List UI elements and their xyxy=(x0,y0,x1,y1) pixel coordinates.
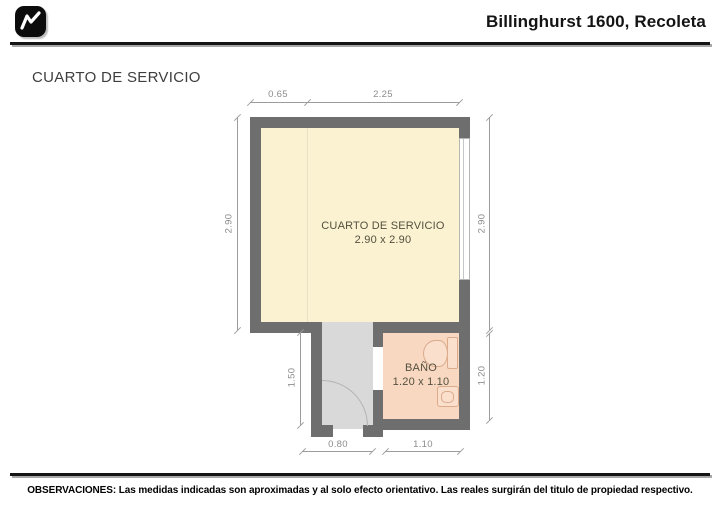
dim-line-top xyxy=(250,102,459,103)
window xyxy=(459,138,470,280)
dim-tick xyxy=(486,417,493,424)
wall-top xyxy=(250,117,470,128)
main-room-size: 2.90 x 2.90 xyxy=(307,233,459,247)
dim-line-hall xyxy=(300,332,301,425)
window-pane-line xyxy=(463,139,464,279)
dim-label-bath-height: 1.20 xyxy=(477,361,488,391)
dim-tick xyxy=(297,422,304,429)
dim-tick xyxy=(234,327,241,334)
wall-entrance-stub-right xyxy=(363,425,383,437)
footer-divider xyxy=(10,473,710,476)
dim-label-top-left: 0.65 xyxy=(258,89,298,100)
dim-tick xyxy=(456,99,463,106)
bathroom-label: BAÑO 1.20 x 1.10 xyxy=(383,361,459,389)
dim-label-left: 2.90 xyxy=(224,209,235,239)
wall-left xyxy=(250,117,261,333)
bathroom-door-opening xyxy=(373,347,383,390)
dim-tick xyxy=(457,448,464,455)
dim-label-top-right: 2.25 xyxy=(363,89,403,100)
sink-basin-icon xyxy=(441,391,454,403)
wall-hall-left xyxy=(311,332,322,425)
dim-line-bottom-hall xyxy=(302,451,372,452)
dim-line-bottom-bath xyxy=(385,451,460,452)
bathroom-size: 1.20 x 1.10 xyxy=(383,375,459,389)
dim-line-right-bath xyxy=(489,333,490,420)
main-room-label: CUARTO DE SERVICIO 2.90 x 2.90 xyxy=(307,219,459,247)
dim-label-hall-height: 1.50 xyxy=(287,363,298,393)
footer-disclaimer: OBSERVACIONES: Las medidas indicadas son… xyxy=(0,485,720,496)
main-room-name: CUARTO DE SERVICIO xyxy=(307,219,459,233)
dim-label-bath-width: 1.10 xyxy=(403,439,443,450)
dim-label-hall-width: 0.80 xyxy=(318,439,358,450)
dim-line-left xyxy=(237,117,238,330)
wall-entrance-stub-left xyxy=(311,425,333,437)
trend-zigzag-icon xyxy=(14,5,48,39)
brand-logo xyxy=(14,5,48,39)
dim-label-right: 2.90 xyxy=(477,209,488,239)
wall-bottom-right xyxy=(373,322,470,333)
page-title: Billinghurst 1600, Recoleta xyxy=(486,12,706,32)
dim-line-right-main xyxy=(489,117,490,330)
wall-bath-bottom xyxy=(373,419,470,430)
header-divider xyxy=(10,42,710,45)
dim-tick xyxy=(369,448,376,455)
plan-title: CUARTO DE SERVICIO xyxy=(32,69,201,86)
wall-right-lower xyxy=(459,280,470,430)
sink-icon xyxy=(437,386,459,407)
bathroom-name: BAÑO xyxy=(383,361,459,375)
